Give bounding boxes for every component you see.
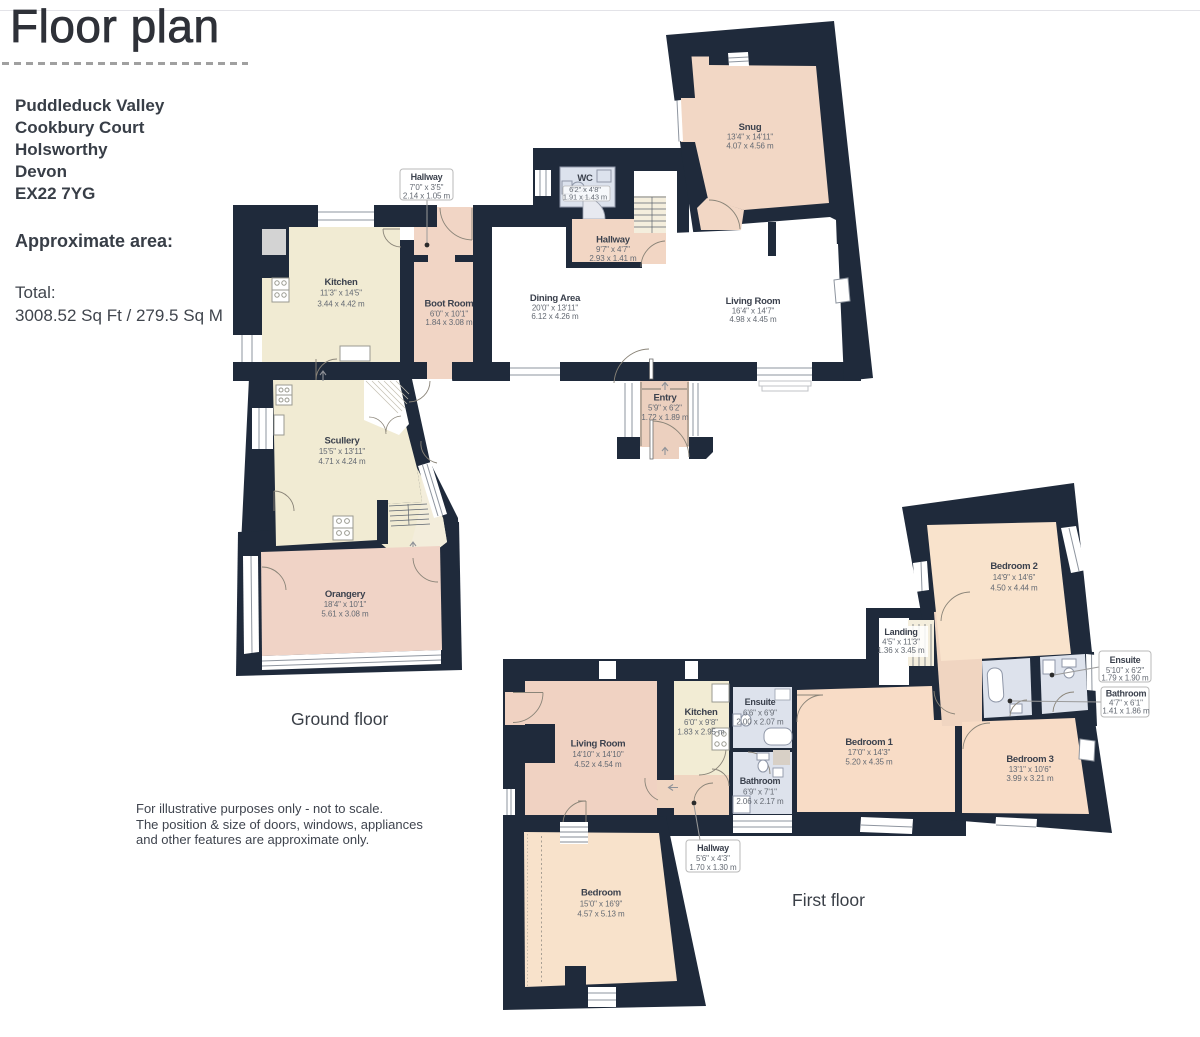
svg-text:14'9" x 14'6": 14'9" x 14'6" — [993, 573, 1036, 582]
svg-text:1.36 x 3.45 m: 1.36 x 3.45 m — [877, 646, 925, 655]
svg-text:6'0" x 9'8": 6'0" x 9'8" — [684, 718, 718, 727]
svg-text:18'4" x 10'1": 18'4" x 10'1" — [324, 600, 367, 609]
svg-text:Scullery: Scullery — [325, 436, 361, 447]
svg-text:11'3" x 14'5": 11'3" x 14'5" — [320, 289, 362, 298]
svg-text:1.79 x 1.90 m: 1.79 x 1.90 m — [1101, 674, 1149, 683]
svg-text:6.12 x 4.26 m: 6.12 x 4.26 m — [531, 312, 579, 321]
svg-text:2.14 x 1.05 m: 2.14 x 1.05 m — [403, 192, 451, 201]
svg-text:Bedroom 1: Bedroom 1 — [845, 737, 893, 748]
svg-text:5.20 x 4.35 m: 5.20 x 4.35 m — [845, 758, 893, 767]
svg-text:Hallway: Hallway — [596, 235, 631, 246]
svg-text:Snug: Snug — [739, 122, 762, 133]
svg-text:4.52 x 4.54 m: 4.52 x 4.54 m — [574, 760, 622, 769]
svg-text:15'0" x 16'9": 15'0" x 16'9" — [580, 900, 623, 909]
svg-text:2.93 x 1.41 m: 2.93 x 1.41 m — [589, 254, 637, 263]
svg-text:Bathroom: Bathroom — [740, 776, 781, 786]
svg-text:2.06 x 2.17 m: 2.06 x 2.17 m — [736, 797, 784, 806]
svg-text:4.71 x 4.24 m: 4.71 x 4.24 m — [318, 457, 366, 466]
svg-text:3.44 x 4.42 m: 3.44 x 4.42 m — [317, 300, 365, 309]
svg-text:Bedroom 2: Bedroom 2 — [990, 561, 1037, 572]
svg-text:1.84 x 3.08 m: 1.84 x 3.08 m — [425, 318, 473, 327]
svg-text:13'1" x 10'6": 13'1" x 10'6" — [1009, 765, 1052, 774]
svg-text:Hallway: Hallway — [697, 843, 729, 853]
svg-text:Bedroom: Bedroom — [581, 888, 621, 899]
svg-text:Bedroom 3: Bedroom 3 — [1006, 754, 1053, 765]
svg-text:Boot Room: Boot Room — [425, 299, 474, 310]
svg-text:Living Room: Living Room — [726, 296, 781, 307]
svg-text:Bathroom: Bathroom — [1106, 689, 1147, 699]
svg-text:Living Room: Living Room — [571, 739, 626, 750]
svg-text:2.00 x 2.07 m: 2.00 x 2.07 m — [736, 718, 784, 727]
svg-text:1.83 x 2.95 m: 1.83 x 2.95 m — [677, 728, 725, 737]
svg-text:4.50 x 4.44 m: 4.50 x 4.44 m — [990, 584, 1038, 593]
svg-text:1.41 x 1.86 m: 1.41 x 1.86 m — [1102, 707, 1150, 716]
svg-text:5'9" x 6'2": 5'9" x 6'2" — [648, 404, 682, 413]
svg-text:4.98 x 4.45 m: 4.98 x 4.45 m — [729, 315, 777, 324]
svg-text:1.70 x 1.30 m: 1.70 x 1.30 m — [689, 863, 737, 872]
svg-text:13'4" x 14'11": 13'4" x 14'11" — [727, 133, 774, 142]
svg-text:Ensuite: Ensuite — [1110, 655, 1141, 665]
svg-text:3.99 x 3.21 m: 3.99 x 3.21 m — [1006, 774, 1054, 783]
svg-text:6'6" x 6'9": 6'6" x 6'9" — [743, 709, 777, 718]
svg-text:6'9" x 7'1": 6'9" x 7'1" — [743, 788, 777, 797]
svg-text:15'5" x 13'11": 15'5" x 13'11" — [319, 447, 366, 456]
svg-text:Orangery: Orangery — [325, 589, 366, 600]
svg-text:Landing: Landing — [884, 627, 917, 637]
svg-text:5'6" x 4'3": 5'6" x 4'3" — [696, 854, 730, 863]
svg-text:1.72 x 1.89 m: 1.72 x 1.89 m — [641, 413, 689, 422]
svg-text:14'10" x 14'10": 14'10" x 14'10" — [572, 750, 624, 759]
svg-text:9'7" x 4'7": 9'7" x 4'7" — [596, 245, 630, 254]
svg-text:Ensuite: Ensuite — [745, 697, 776, 707]
svg-text:4.07 x 4.56 m: 4.07 x 4.56 m — [726, 142, 774, 151]
svg-text:Hallway: Hallway — [411, 172, 443, 182]
svg-text:Dining Area: Dining Area — [530, 293, 581, 304]
svg-text:Kitchen: Kitchen — [324, 277, 358, 288]
svg-text:1.91 x 1.43 m: 1.91 x 1.43 m — [563, 193, 607, 202]
svg-text:Entry: Entry — [653, 393, 677, 404]
svg-text:Kitchen: Kitchen — [684, 707, 718, 718]
svg-text:4.57 x 5.13 m: 4.57 x 5.13 m — [577, 910, 625, 919]
svg-text:17'0" x 14'3": 17'0" x 14'3" — [848, 748, 891, 757]
svg-text:5.61 x 3.08 m: 5.61 x 3.08 m — [321, 610, 369, 619]
svg-text:WC: WC — [577, 173, 593, 184]
